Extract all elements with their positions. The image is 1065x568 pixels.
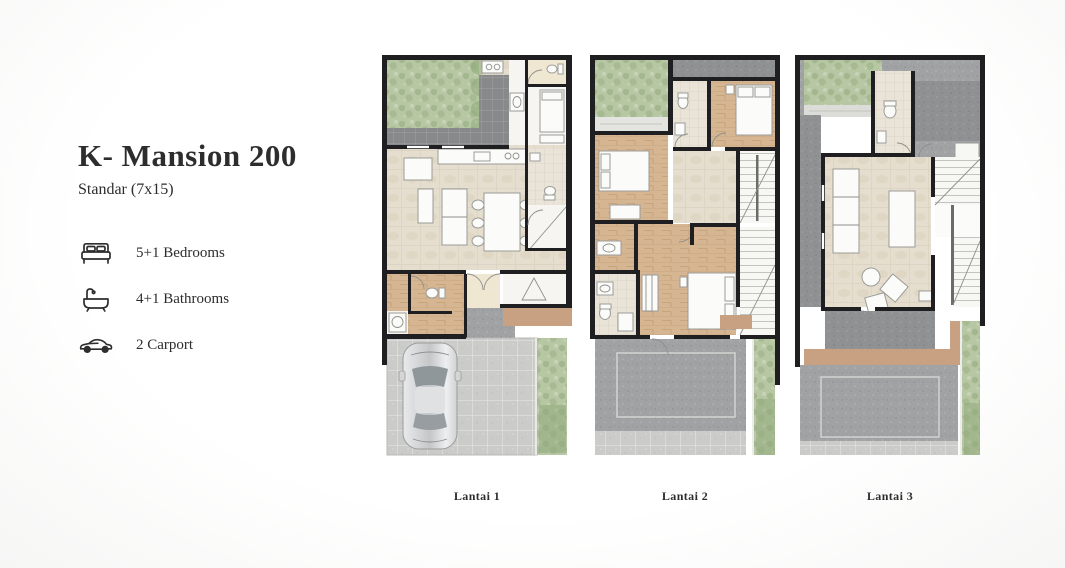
bed-icon <box>78 239 114 269</box>
feature-label: 5+1 Bedrooms <box>136 245 225 262</box>
family-room <box>825 157 933 317</box>
entry-foyer <box>467 274 572 338</box>
car-top-view <box>399 343 461 449</box>
floor-plan-lantai-3 <box>795 55 985 457</box>
garden-area <box>387 59 489 132</box>
floor-caption-2: Lantai 2 <box>590 489 780 504</box>
bathroom-4 <box>871 71 915 157</box>
info-panel: K- Mansion 200 Standar (7x15) 5+1 Bedroo… <box>78 140 358 361</box>
garden-void <box>595 60 668 131</box>
understair-storage <box>525 205 572 251</box>
roof-strip <box>673 60 775 77</box>
side-garden-strip <box>752 339 775 455</box>
floor-plan-3-drawing <box>795 55 985 457</box>
page-title: K- Mansion 200 <box>78 140 358 173</box>
stairs-upper <box>740 151 775 223</box>
garden-void <box>804 60 882 117</box>
roof-terrace <box>595 339 746 455</box>
roof-patch <box>913 81 980 141</box>
floor-plan-1-drawing <box>382 55 572 457</box>
floor-plan-2-drawing <box>590 55 780 457</box>
bathroom-3 <box>673 81 707 147</box>
maid-suite <box>387 274 467 338</box>
maid-bedroom <box>528 87 566 145</box>
feature-list: 5+1 Bedrooms 4+1 Bathrooms <box>78 239 358 361</box>
feature-label: 2 Carport <box>136 337 193 354</box>
bathroom-2 <box>595 274 636 335</box>
feature-label: 4+1 Bathrooms <box>136 291 229 308</box>
side-garden-strip <box>960 321 980 455</box>
feature-bathrooms: 4+1 Bathrooms <box>78 285 358 315</box>
car-icon <box>78 331 114 361</box>
brochure-page: { "info": { "title": "K- Mansion 200", "… <box>0 0 1065 568</box>
bedroom-3 <box>595 135 668 223</box>
floor-plan-lantai-1 <box>382 55 572 457</box>
floor-caption-3: Lantai 3 <box>795 489 985 504</box>
page-subtitle: Standar (7x15) <box>78 181 358 199</box>
bathtub-icon <box>78 285 114 315</box>
bedroom-2 <box>711 81 775 147</box>
left-roof-strip <box>800 115 821 307</box>
side-garden-strip <box>537 338 567 455</box>
floor-caption-1: Lantai 1 <box>382 489 572 504</box>
stairs <box>935 157 980 307</box>
floor-plan-lantai-2 <box>590 55 780 457</box>
bathroom-main-floor <box>525 145 566 205</box>
feature-bedrooms: 5+1 Bedrooms <box>78 239 358 269</box>
dining-table <box>472 193 532 251</box>
vanity-room <box>595 224 638 270</box>
feature-carport: 2 Carport <box>78 331 358 361</box>
hallway <box>673 151 736 223</box>
guest-toilet <box>528 60 566 85</box>
lower-roof-paving <box>800 365 958 455</box>
drying-area <box>821 307 935 349</box>
